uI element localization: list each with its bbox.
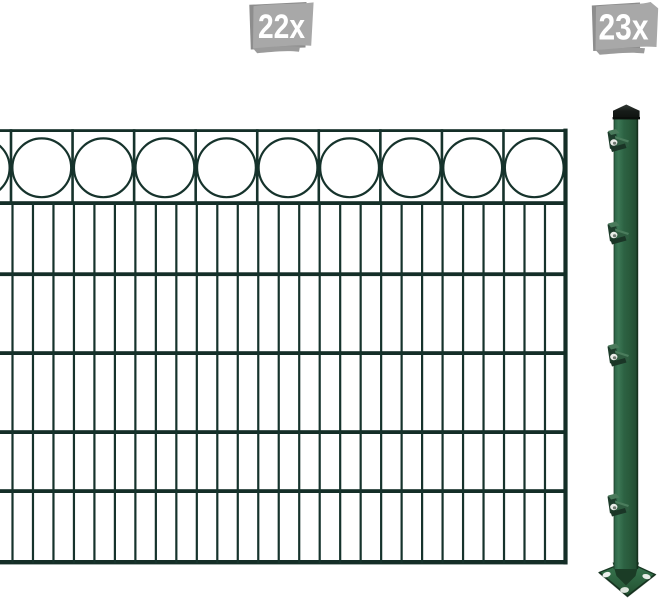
svg-text:23x: 23x: [599, 6, 650, 47]
svg-text:22x: 22x: [258, 8, 305, 46]
